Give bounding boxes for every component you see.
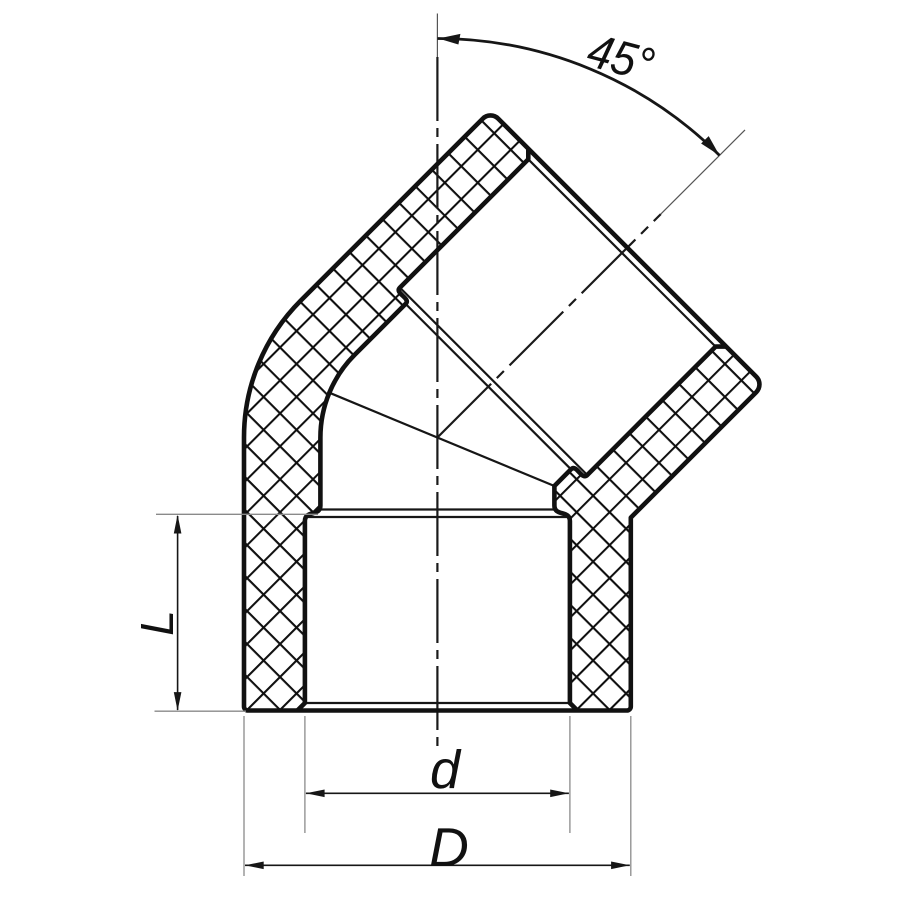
svg-text:D: D <box>429 816 469 878</box>
svg-text:L: L <box>131 610 183 636</box>
svg-text:d: d <box>430 740 462 800</box>
